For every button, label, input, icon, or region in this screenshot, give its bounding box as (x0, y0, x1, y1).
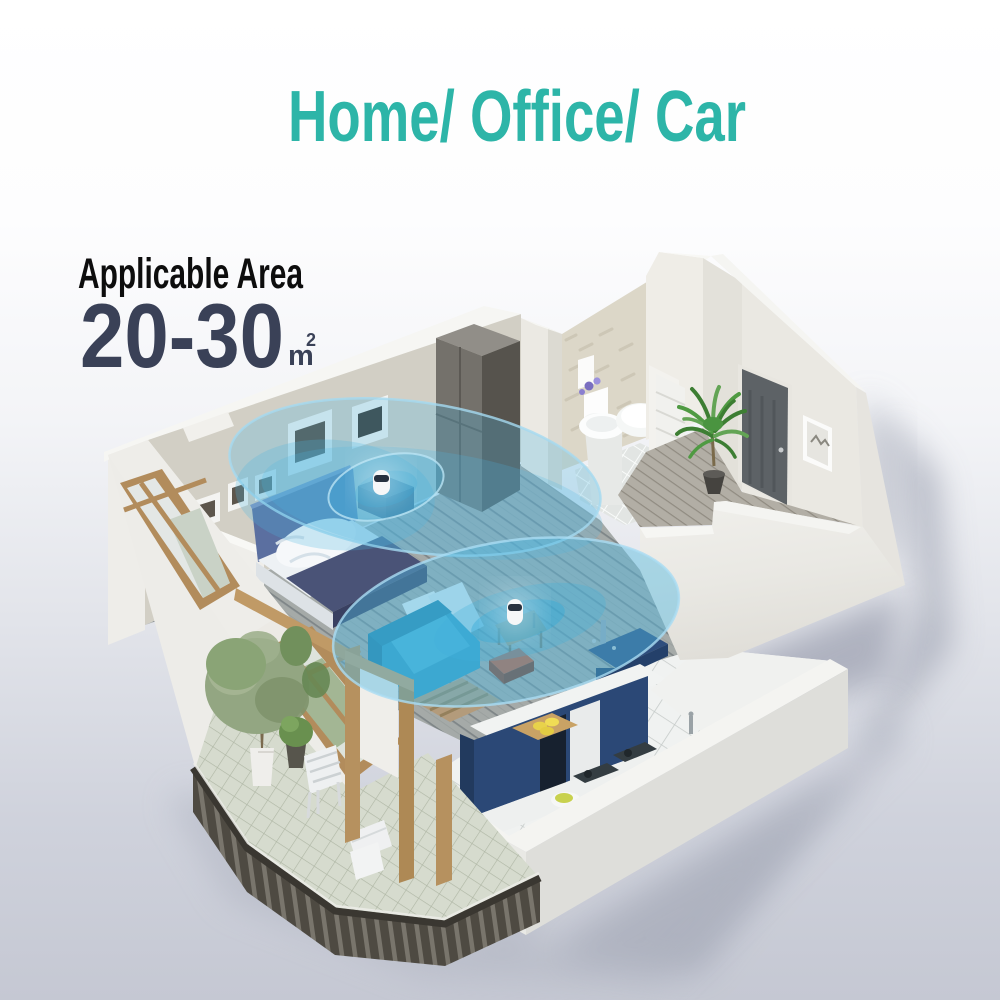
svg-text:2: 2 (306, 330, 316, 350)
svg-text:Home/ Office/ Car: Home/ Office/ Car (288, 77, 746, 157)
svg-text:20-30: 20-30 (80, 286, 284, 387)
